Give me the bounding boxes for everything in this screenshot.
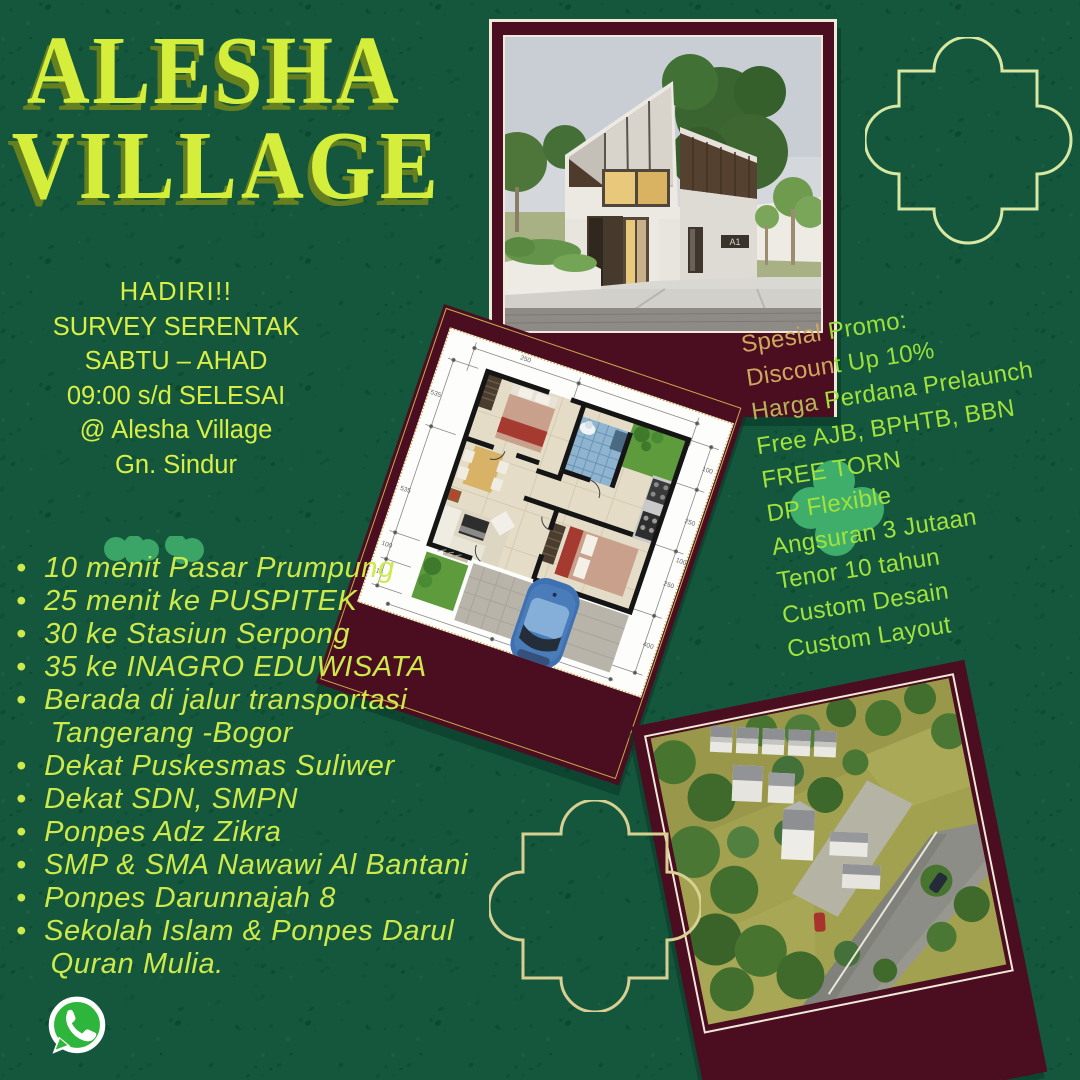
svg-text:A1: A1: [729, 237, 740, 247]
